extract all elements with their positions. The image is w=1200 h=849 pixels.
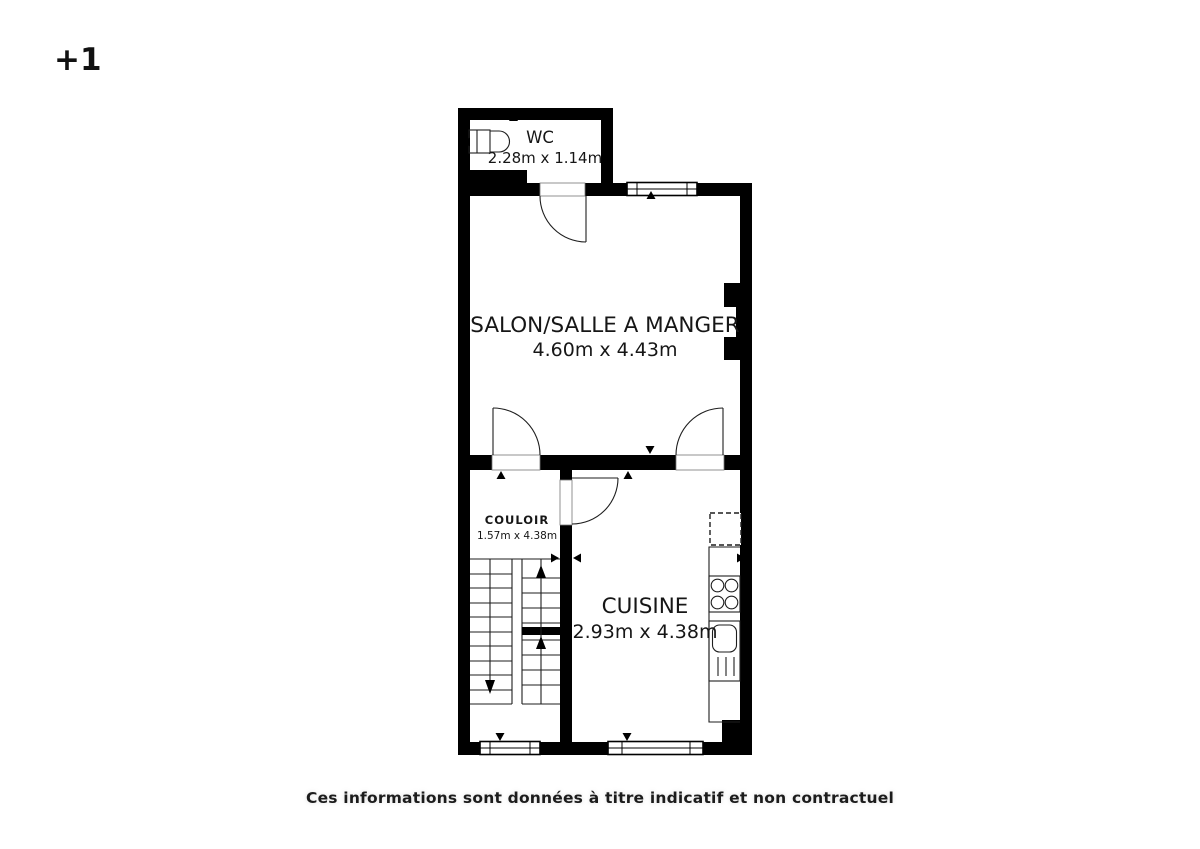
walls	[458, 108, 752, 755]
stair-left-flight	[470, 559, 512, 704]
floor-plan: WC 2.28m x 1.14m SALON/SALLE A MANGER 4.…	[0, 0, 1200, 849]
fridge-icon	[710, 513, 741, 545]
stair-up-arrow-icon	[536, 565, 546, 578]
cuisine-room-label: CUISINE	[602, 594, 689, 619]
measure-arrow-icon	[462, 113, 748, 741]
stove-icon	[709, 576, 740, 612]
couloir-room-label: COULOIR	[485, 513, 549, 527]
salon-room-label: SALON/SALLE A MANGER	[470, 313, 739, 338]
stair-right-flight	[522, 559, 560, 704]
couloir-room-dimensions: 1.57m x 4.38m	[477, 530, 557, 542]
wc-room-dimensions: 2.28m x 1.14m	[488, 149, 602, 167]
wc-room-label: WC	[526, 128, 554, 147]
floorplan-page: +1	[0, 0, 1200, 849]
salon-room-dimensions: 4.60m x 4.43m	[533, 339, 678, 361]
stair-down-arrow-icon	[485, 680, 495, 694]
disclaimer-text: Ces informations sont données à titre in…	[0, 789, 1200, 807]
stair-up-arrow-icon	[536, 636, 546, 649]
cuisine-room-dimensions: 2.93m x 4.38m	[573, 621, 718, 643]
staircase-icon	[470, 559, 560, 704]
